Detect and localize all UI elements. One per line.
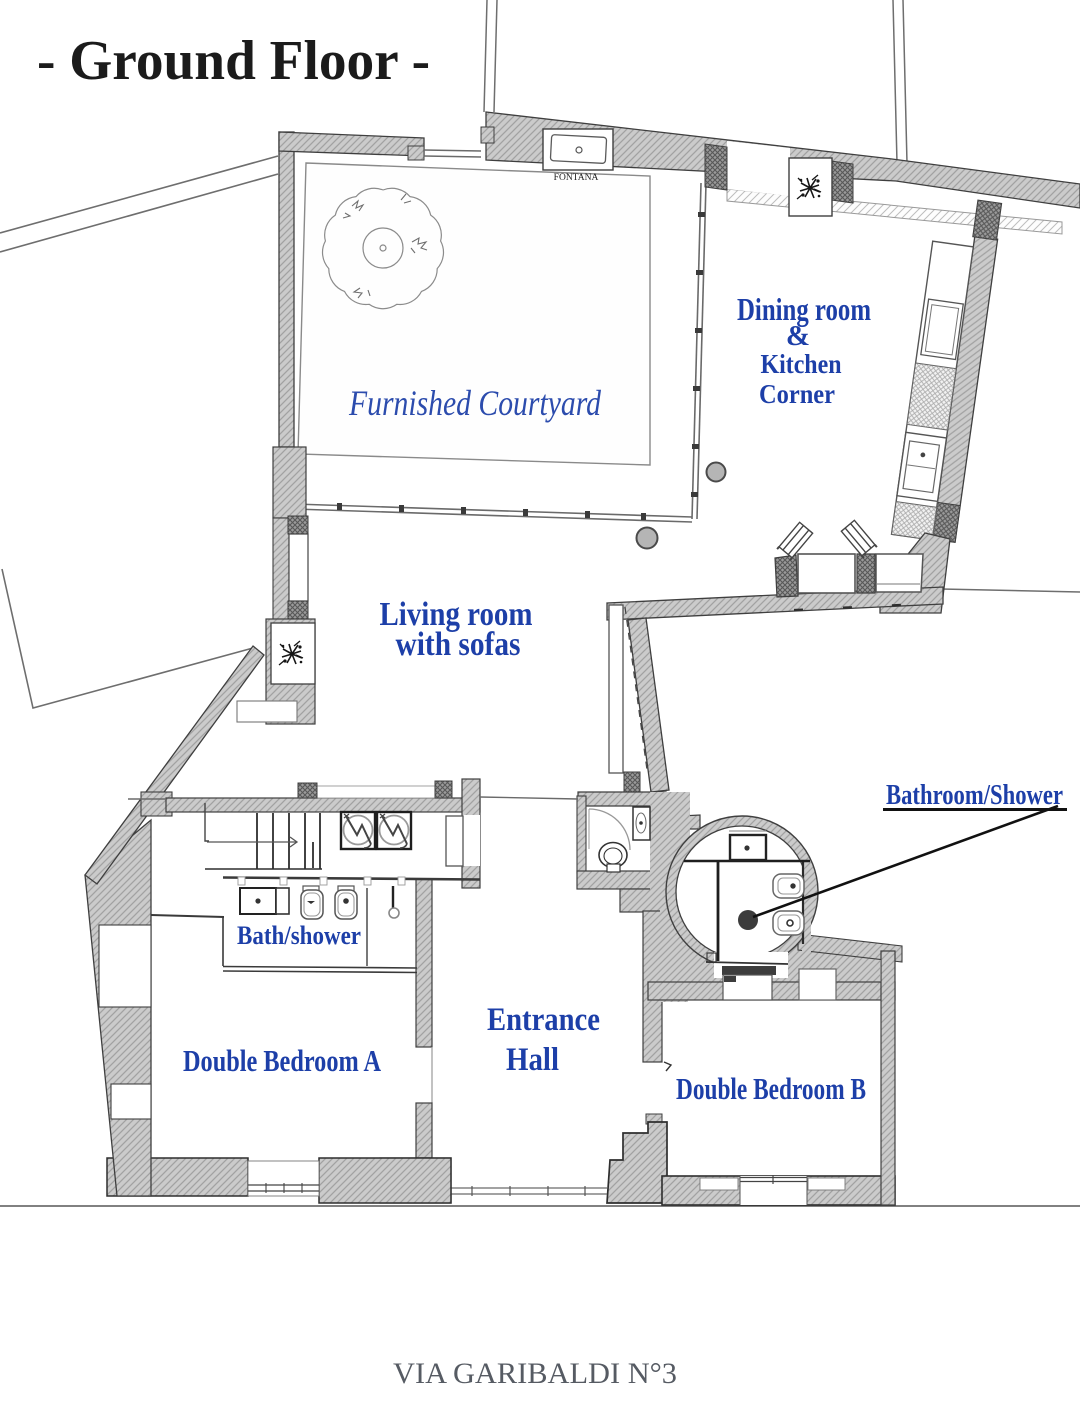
svg-text:&: & [786,320,810,352]
svg-text:Corner: Corner [759,379,835,409]
svg-text:Bathroom/Shower: Bathroom/Shower [886,779,1063,811]
svg-text:with sofas: with sofas [396,626,521,663]
svg-text:Entrance: Entrance [487,1002,600,1038]
svg-text:Kitchen: Kitchen [761,349,842,379]
svg-text:FONTANA: FONTANA [554,173,599,183]
svg-text:Double Bedroom A: Double Bedroom A [183,1043,381,1078]
svg-text:Furnished Courtyard: Furnished Courtyard [348,383,602,423]
svg-text:Bath/shower: Bath/shower [237,921,361,950]
svg-text:- Ground Floor -: - Ground Floor - [37,30,430,92]
svg-text:Double Bedroom B: Double Bedroom B [676,1071,866,1106]
svg-text:Hall: Hall [506,1042,559,1078]
svg-text:VIA GARIBALDI N°3: VIA GARIBALDI N°3 [393,1357,677,1390]
